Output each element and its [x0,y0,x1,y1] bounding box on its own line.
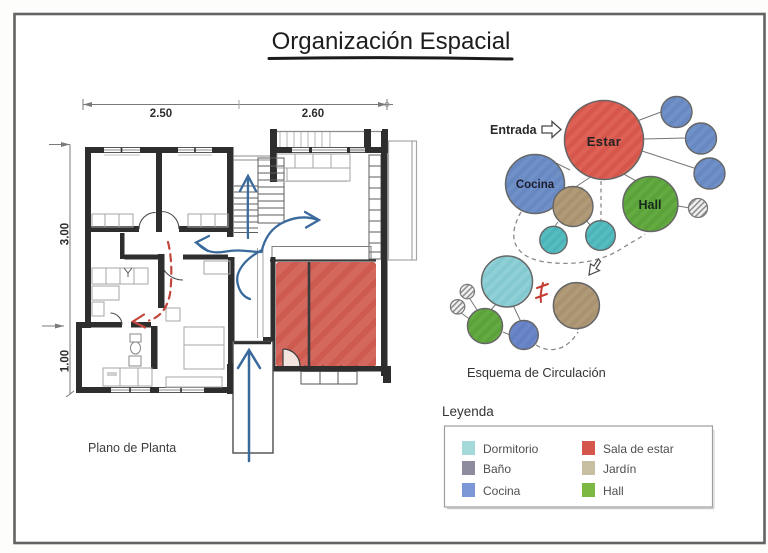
svg-text:Cocina: Cocina [516,179,555,191]
svg-text:Leyenda: Leyenda [442,404,494,419]
svg-text:1.00: 1.00 [60,350,72,372]
svg-text:Baño: Baño [483,462,511,476]
svg-text:Plano de Planta: Plano de Planta [88,441,176,455]
svg-text:2.60: 2.60 [302,108,324,120]
svg-text:Sala de estar: Sala de estar [603,442,674,456]
svg-text:Dormitorio: Dormitorio [483,442,539,456]
svg-text:Jardín: Jardín [603,462,636,476]
svg-text:3.00: 3.00 [60,223,72,245]
svg-text:Esquema de Circulación: Esquema de Circulación [467,365,606,380]
svg-text:Hall: Hall [603,484,624,498]
svg-text:2.50: 2.50 [150,108,172,120]
svg-text:Organización Espacial: Organización Espacial [272,28,511,55]
svg-text:Hall: Hall [639,198,662,212]
svg-text:Entrada: Entrada [490,123,538,137]
svg-text:Cocina: Cocina [483,484,521,498]
svg-text:Estar: Estar [587,134,622,149]
